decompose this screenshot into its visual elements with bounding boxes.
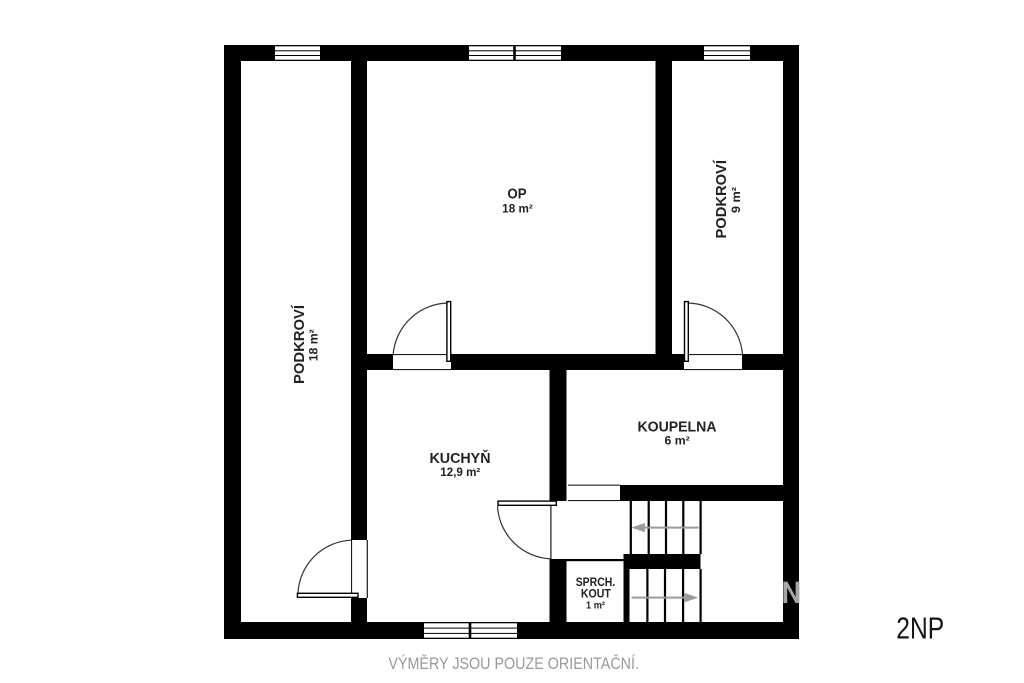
svg-text:6 m²: 6 m² [665,434,690,447]
svg-text:VÝMĚRY JSOU POUZE ORIENTAČNÍ.: VÝMĚRY JSOU POUZE ORIENTAČNÍ. [388,654,639,673]
svg-text:1 m²: 1 m² [586,601,606,612]
svg-text:KOUPELNA: KOUPELNA [638,419,717,436]
svg-text:18 m²: 18 m² [308,329,321,361]
svg-text:KOUT: KOUT [581,587,611,601]
svg-text:9 m²: 9 m² [730,187,743,213]
svg-text:OP: OP [507,186,526,203]
svg-text:18 m²: 18 m² [502,202,533,215]
svg-text:2NP: 2NP [896,611,944,646]
svg-text:KUCHYŇ: KUCHYŇ [430,449,491,467]
svg-text:12,9 m²: 12,9 m² [440,466,480,479]
svg-text:PODKROVÍ: PODKROVÍ [713,159,730,238]
svg-text:PODKROVÍ: PODKROVÍ [291,304,308,384]
